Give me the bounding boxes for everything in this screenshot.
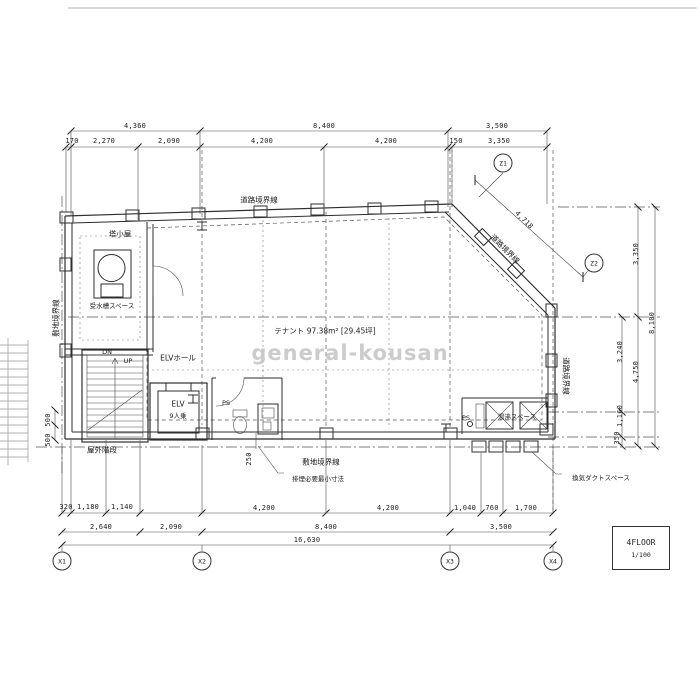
dim-bottom-total: 16,630 <box>294 536 321 544</box>
dim-bottom: 1,040 <box>454 504 476 512</box>
dim-bottom: 3,500 <box>490 523 512 531</box>
axis-bubble-x1: X1 <box>53 552 72 571</box>
dim-right: 1,160 <box>616 405 624 427</box>
kitchenette-area <box>462 398 548 452</box>
smoke-exhaust-label: 排煙必要最小寸法 <box>292 473 344 483</box>
stair-up-label: UP <box>124 357 133 365</box>
dim-smoke-offset: 250 <box>245 452 253 465</box>
wc-room <box>212 378 282 440</box>
dim-left-offset: 500 <box>44 413 52 426</box>
dim-top: 3,500 <box>486 122 508 130</box>
scan-artifacts <box>0 8 697 465</box>
dim-left-offset: 500 <box>44 433 52 446</box>
dim-bottom: 2,090 <box>160 523 182 531</box>
elv-label: ELV <box>171 400 184 409</box>
outdoor-stair-label: 屋外階段 <box>87 445 117 456</box>
title-block-floor: 4FLOOR <box>627 538 656 547</box>
axis-bubble-z2: Z2 <box>585 254 604 273</box>
floorplan-scan: general-kousan 4,360 8,400 3,500 170 2,2… <box>0 0 700 700</box>
dim-right: 3,350 <box>632 243 640 265</box>
dim-bottom: 8,400 <box>315 523 337 531</box>
dim-right: 4,750 <box>632 361 640 383</box>
title-block-scale: 1/100 <box>631 551 651 559</box>
axis-bubble-x3: X3 <box>441 552 460 571</box>
water-tank-space-label: 受水槽スペース <box>90 300 135 310</box>
road-boundary-right-label: 道路境界線 <box>561 357 572 395</box>
axis-bubble-x2: X2 <box>193 552 212 571</box>
tenant-area-label: テナント 97.38m² [29.45坪] <box>274 326 375 337</box>
dimension-left-offsets <box>52 407 59 444</box>
dim-bottom: 320 <box>59 503 72 511</box>
dim-top: 2,270 <box>93 137 115 145</box>
elv-capacity-label: 9人乗 <box>169 410 186 420</box>
dim-right: 350 <box>613 431 621 444</box>
penthouse-label: 塔小屋 <box>109 229 132 240</box>
tenant-outline <box>147 217 542 420</box>
elv-hall-label: ELVホール <box>160 353 196 364</box>
dimension-lines-top <box>63 128 551 221</box>
dim-bottom: 1,180 <box>77 503 99 511</box>
vent-duct-space-label: 換気ダクトスペース <box>572 472 630 482</box>
dim-bottom: 2,640 <box>90 523 112 531</box>
dim-bottom: 760 <box>485 504 498 512</box>
watermark: general-kousan <box>251 341 448 365</box>
dim-top: 4,360 <box>124 122 146 130</box>
axis-bubble-z1: Z1 <box>494 154 513 173</box>
dim-bottom: 1,140 <box>111 503 133 511</box>
site-boundary-bottom-label: 敷地境界線 <box>302 457 340 468</box>
pipe-space-label: PS <box>462 414 470 422</box>
dim-bottom: 4,200 <box>253 504 275 512</box>
dim-top: 4,200 <box>251 137 273 145</box>
dim-top: 3,350 <box>488 137 510 145</box>
road-boundary-top-label: 道路境界線 <box>240 195 278 206</box>
axis-bubble-x4: X4 <box>544 552 563 571</box>
dim-top: 2,090 <box>158 137 180 145</box>
dim-top: 170 <box>65 137 78 145</box>
dim-top: 8,400 <box>313 122 335 130</box>
dim-right: 3,240 <box>616 341 624 363</box>
site-boundary-left-label: 敷地境界線 <box>51 299 62 337</box>
dim-bottom: 4,200 <box>377 504 399 512</box>
pipe-space-label: PS <box>222 399 230 407</box>
dim-top: 150 <box>449 137 462 145</box>
penthouse-room <box>65 222 183 355</box>
kitchenette-label: 湯沸スペース <box>498 411 536 421</box>
stair-dn-label: DN <box>102 348 112 356</box>
dim-bottom: 1,700 <box>515 504 537 512</box>
title-block: 4FLOOR 1/100 <box>612 526 670 570</box>
dim-right-total: 8,100 <box>648 312 656 334</box>
outdoor-stair <box>82 350 148 442</box>
dim-top: 4,200 <box>375 137 397 145</box>
